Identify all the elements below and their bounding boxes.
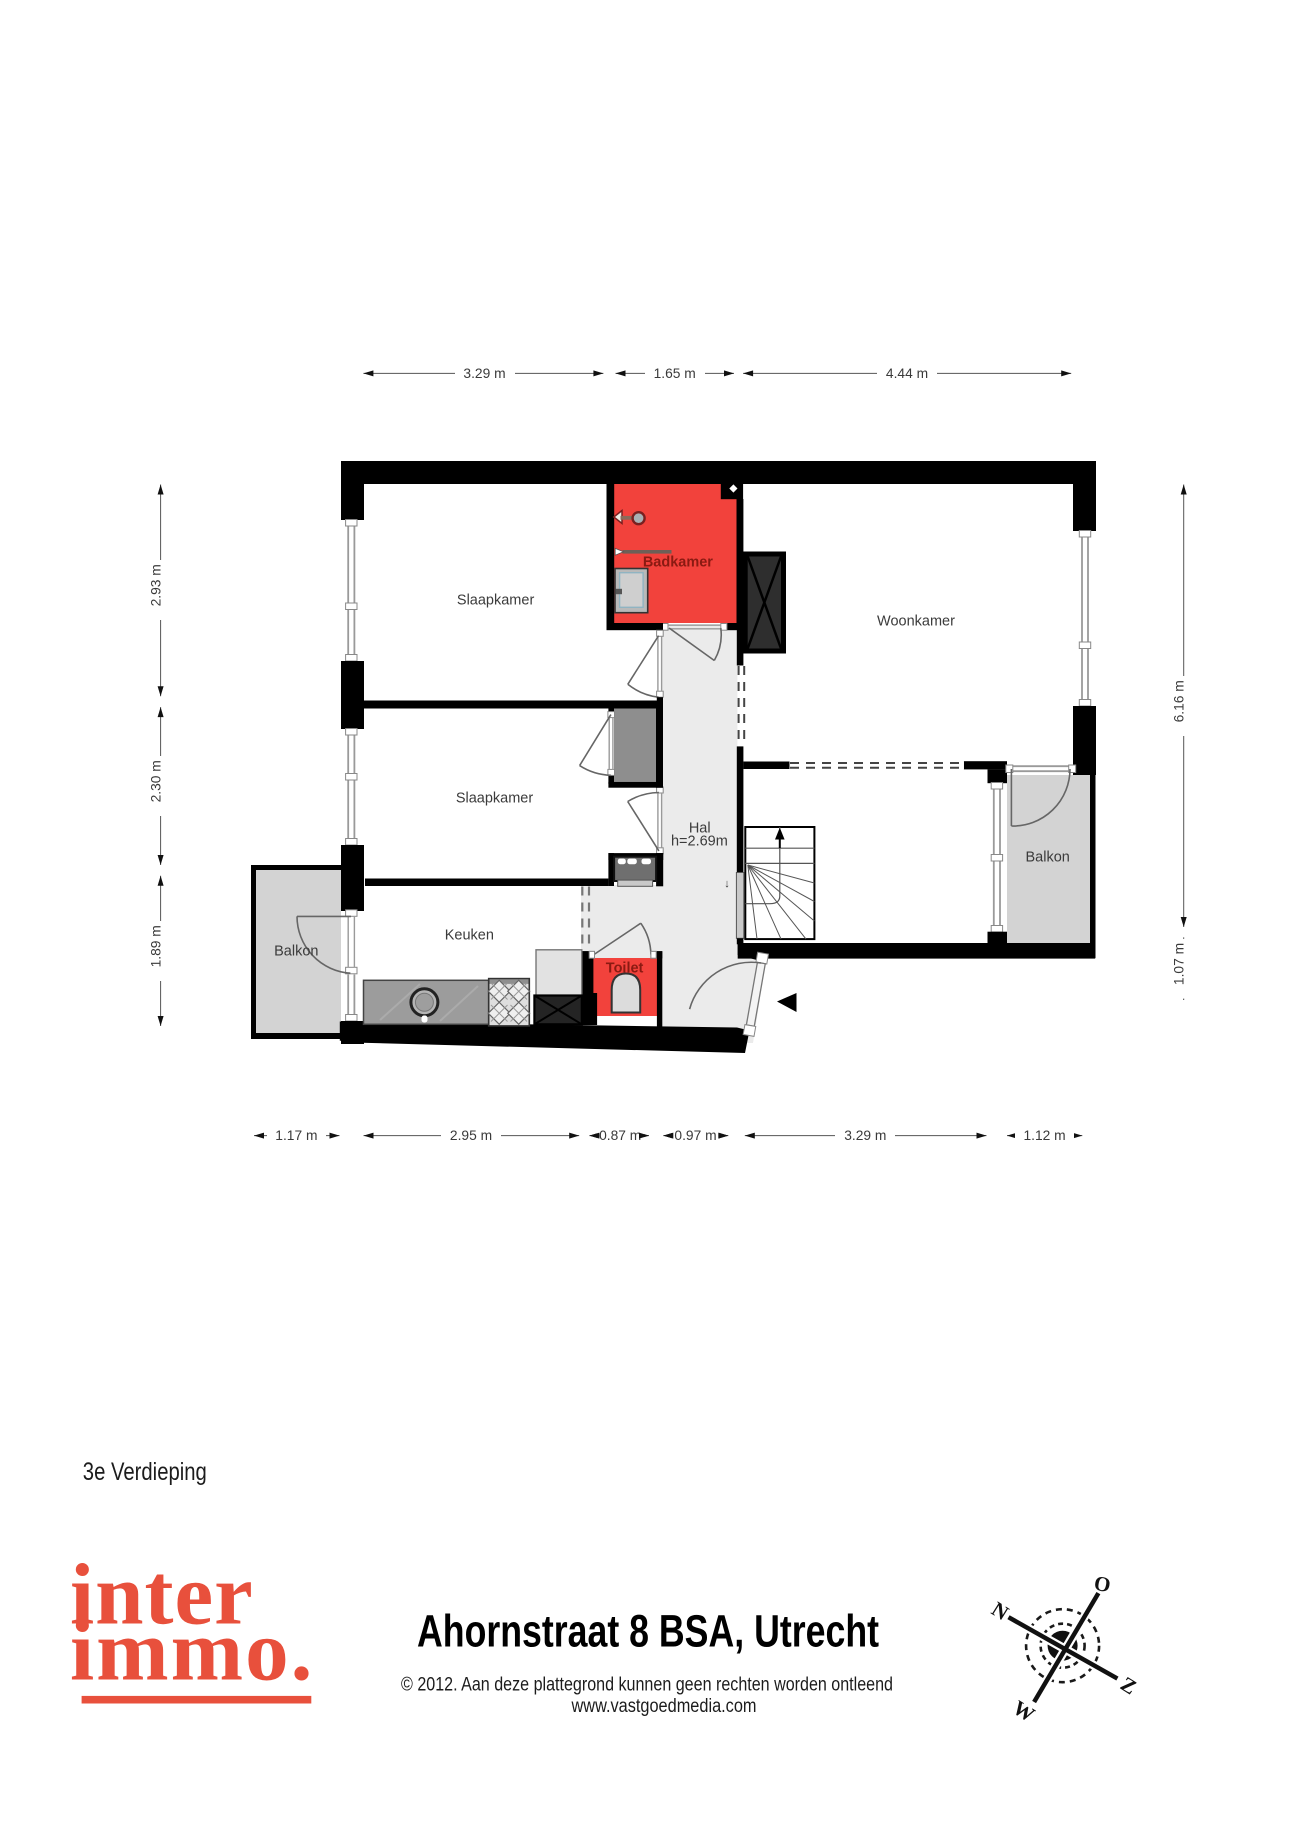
svg-text:Slaapkamer: Slaapkamer bbox=[456, 791, 534, 807]
svg-text:Slaapkamer: Slaapkamer bbox=[457, 592, 535, 608]
svg-text:© 2012. Aan deze plattegrond k: © 2012. Aan deze plattegrond kunnen geen… bbox=[401, 1675, 893, 1696]
svg-text:Ahornstraat 8 BSA, Utrecht: Ahornstraat 8 BSA, Utrecht bbox=[417, 1606, 879, 1657]
svg-text:2.93 m: 2.93 m bbox=[149, 564, 164, 606]
svg-text:6.16 m: 6.16 m bbox=[1172, 680, 1187, 722]
svg-text:www.vastgoedmedia.com: www.vastgoedmedia.com bbox=[571, 1696, 757, 1717]
svg-text:4.44 m: 4.44 m bbox=[886, 366, 928, 381]
svg-text:Balkon: Balkon bbox=[1026, 850, 1070, 866]
svg-text:3.29 m: 3.29 m bbox=[844, 1128, 886, 1143]
svg-text:1.17 m: 1.17 m bbox=[275, 1128, 317, 1143]
svg-text:0.87 m: 0.87 m bbox=[599, 1128, 641, 1143]
svg-text:Keuken: Keuken bbox=[445, 928, 494, 944]
svg-text:Woonkamer: Woonkamer bbox=[877, 614, 955, 630]
svg-text:immo.: immo. bbox=[70, 1601, 314, 1698]
svg-text:1.65 m: 1.65 m bbox=[654, 366, 696, 381]
svg-text:h=2.69m: h=2.69m bbox=[671, 834, 728, 850]
svg-text:2.30 m: 2.30 m bbox=[149, 760, 164, 802]
svg-text:Toilet: Toilet bbox=[606, 961, 644, 977]
svg-text:3e Verdieping: 3e Verdieping bbox=[83, 1458, 207, 1486]
svg-text:0.97 m: 0.97 m bbox=[674, 1128, 716, 1143]
svg-text:1.89 m: 1.89 m bbox=[149, 925, 164, 967]
svg-text:3.29 m: 3.29 m bbox=[463, 366, 505, 381]
svg-text:Balkon: Balkon bbox=[274, 944, 318, 960]
svg-text:2.95 m: 2.95 m bbox=[450, 1128, 492, 1143]
svg-text:↓: ↓ bbox=[724, 878, 730, 890]
svg-text:1.12 m: 1.12 m bbox=[1024, 1128, 1066, 1143]
svg-text:Badkamer: Badkamer bbox=[643, 555, 713, 571]
svg-text:1.07 m: 1.07 m bbox=[1172, 943, 1187, 985]
